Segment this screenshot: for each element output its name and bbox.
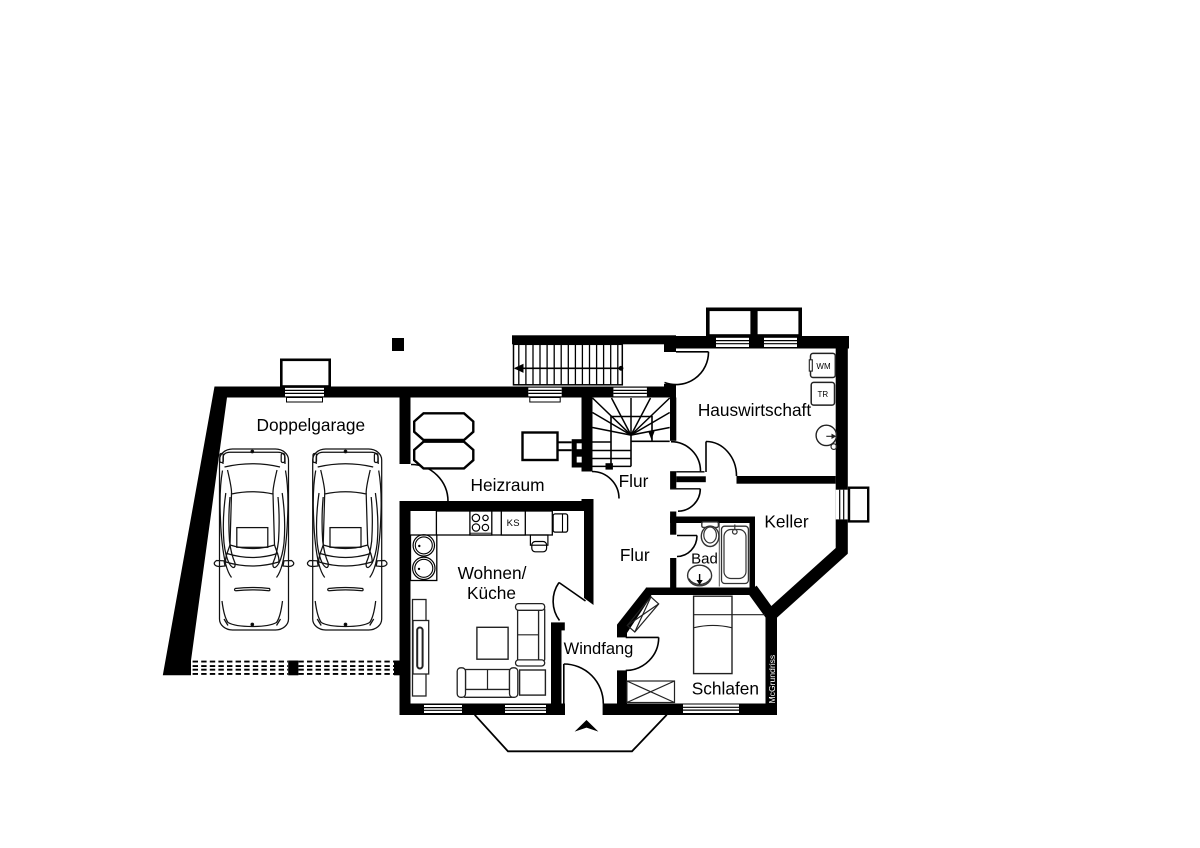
svg-text:Küche: Küche [467, 583, 516, 603]
svg-text:Heizraum: Heizraum [471, 475, 545, 495]
svg-text:Hauswirtschaft: Hauswirtschaft [698, 400, 812, 420]
svg-text:McGrundriss: McGrundriss [767, 655, 777, 704]
svg-text:Doppelgarage: Doppelgarage [257, 415, 366, 435]
svg-text:TR: TR [817, 390, 828, 399]
svg-text:WM: WM [816, 362, 831, 371]
svg-text:Flur: Flur [620, 545, 650, 565]
svg-text:Windfang: Windfang [564, 640, 634, 658]
svg-text:Schlafen: Schlafen [692, 678, 759, 698]
svg-text:Flur: Flur [619, 471, 649, 491]
svg-text:KS: KS [507, 518, 520, 529]
svg-text:Bad: Bad [691, 551, 718, 568]
svg-text:Wohnen/: Wohnen/ [458, 563, 527, 583]
svg-text:Keller: Keller [764, 512, 808, 532]
